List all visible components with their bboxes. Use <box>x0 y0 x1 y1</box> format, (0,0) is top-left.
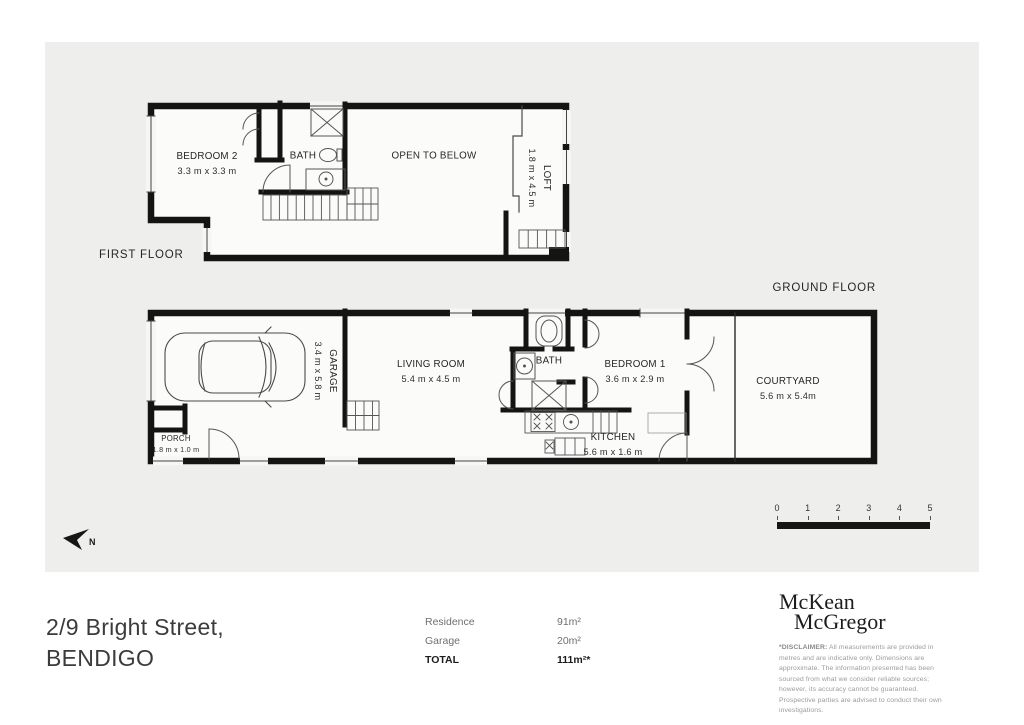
logo-line2: McGregor <box>794 611 886 633</box>
area-value: 20m² <box>557 635 581 647</box>
room-label-bedroom2: BEDROOM 2 3.3 m x 3.3 m <box>176 150 237 178</box>
first-floor-title: FIRST FLOOR <box>99 249 184 261</box>
agency-logo: McKean McGregor <box>779 591 886 633</box>
area-label: Residence <box>425 616 557 628</box>
room-name: LIVING ROOM <box>397 358 465 373</box>
room-dims: 3.4 m x 5.8 m <box>311 342 325 401</box>
wall-corner <box>549 247 569 258</box>
first-floor-plan-drawing <box>145 100 575 266</box>
room-name: COURTYARD <box>756 375 819 390</box>
scale-tick-label: 1 <box>805 503 810 513</box>
room-label-loft: LOFT 1.8 m x 4.5 m <box>525 149 553 208</box>
address-line2: BENDIGO <box>46 643 224 674</box>
room-name: KITCHEN <box>584 431 643 446</box>
north-label: N <box>89 537 96 547</box>
room-name: PORCH <box>153 433 200 445</box>
room-dims: 5.6 m x 5.4m <box>756 389 819 403</box>
area-table: Residence 91m² Garage 20m² TOTAL 111m²* <box>425 616 615 673</box>
scale-bar: 0 1 2 3 4 5 <box>772 503 938 535</box>
table-row-total: TOTAL 111m²* <box>425 654 615 666</box>
scale-tick-label: 3 <box>866 503 871 513</box>
room-name: BEDROOM 2 <box>176 150 237 165</box>
room-label-bath-ff: BATH <box>290 150 316 165</box>
table-row: Residence 91m² <box>425 616 615 628</box>
room-dims: 3.6 m x 2.9 m <box>604 372 665 386</box>
address-line1: 2/9 Bright Street, <box>46 612 224 643</box>
room-dims: 1.8 m x 4.5 m <box>525 149 539 208</box>
floorplan-page: FIRST FLOOR GROUND FLOOR BEDROOM 2 3.3 m… <box>0 0 1024 725</box>
room-name: GARAGE <box>325 342 340 401</box>
property-address: 2/9 Bright Street, BENDIGO <box>46 612 224 674</box>
room-label-bedroom1: BEDROOM 1 3.6 m x 2.9 m <box>604 358 665 386</box>
area-label: Garage <box>425 635 557 647</box>
scale-bar-rule <box>777 522 930 529</box>
area-value: 111m²* <box>557 654 590 666</box>
room-label-open-to-below: OPEN TO BELOW <box>391 150 476 165</box>
disclaimer-text: *DISCLAIMER: All measurements are provid… <box>779 643 955 717</box>
room-dims: 3.3 m x 3.3 m <box>176 164 237 178</box>
room-name: LOFT <box>539 149 554 208</box>
room-label-garage: GARAGE 3.4 m x 5.8 m <box>311 342 339 401</box>
room-label-bath-gf: BATH <box>536 355 562 370</box>
area-value: 91m² <box>557 616 581 628</box>
room-label-courtyard: COURTYARD 5.6 m x 5.4m <box>756 375 819 403</box>
room-label-kitchen: KITCHEN 5.6 m x 1.6 m <box>584 431 643 459</box>
room-dims: 1.8 m x 1.0 m <box>153 444 200 455</box>
table-row: Garage 20m² <box>425 635 615 647</box>
room-name: BATH <box>290 150 316 165</box>
disclaimer-body: All measurements are provided in metres … <box>779 644 942 714</box>
area-label: TOTAL <box>425 654 557 666</box>
scale-tick-label: 0 <box>774 503 779 513</box>
scale-tick-label: 4 <box>897 503 902 513</box>
scale-tick-label: 5 <box>927 503 932 513</box>
room-name: BEDROOM 1 <box>604 358 665 373</box>
room-name: BATH <box>536 355 562 370</box>
ground-floor-title: GROUND FLOOR <box>640 282 876 294</box>
room-dims: 5.4 m x 4.5 m <box>397 372 465 386</box>
room-dims: 5.6 m x 1.6 m <box>584 445 643 459</box>
scale-tick-label: 2 <box>836 503 841 513</box>
disclaimer-label: *DISCLAIMER: <box>779 644 827 651</box>
room-name: OPEN TO BELOW <box>391 150 476 165</box>
room-label-porch: PORCH 1.8 m x 1.0 m <box>153 433 200 455</box>
room-label-living-room: LIVING ROOM 5.4 m x 4.5 m <box>397 358 465 386</box>
